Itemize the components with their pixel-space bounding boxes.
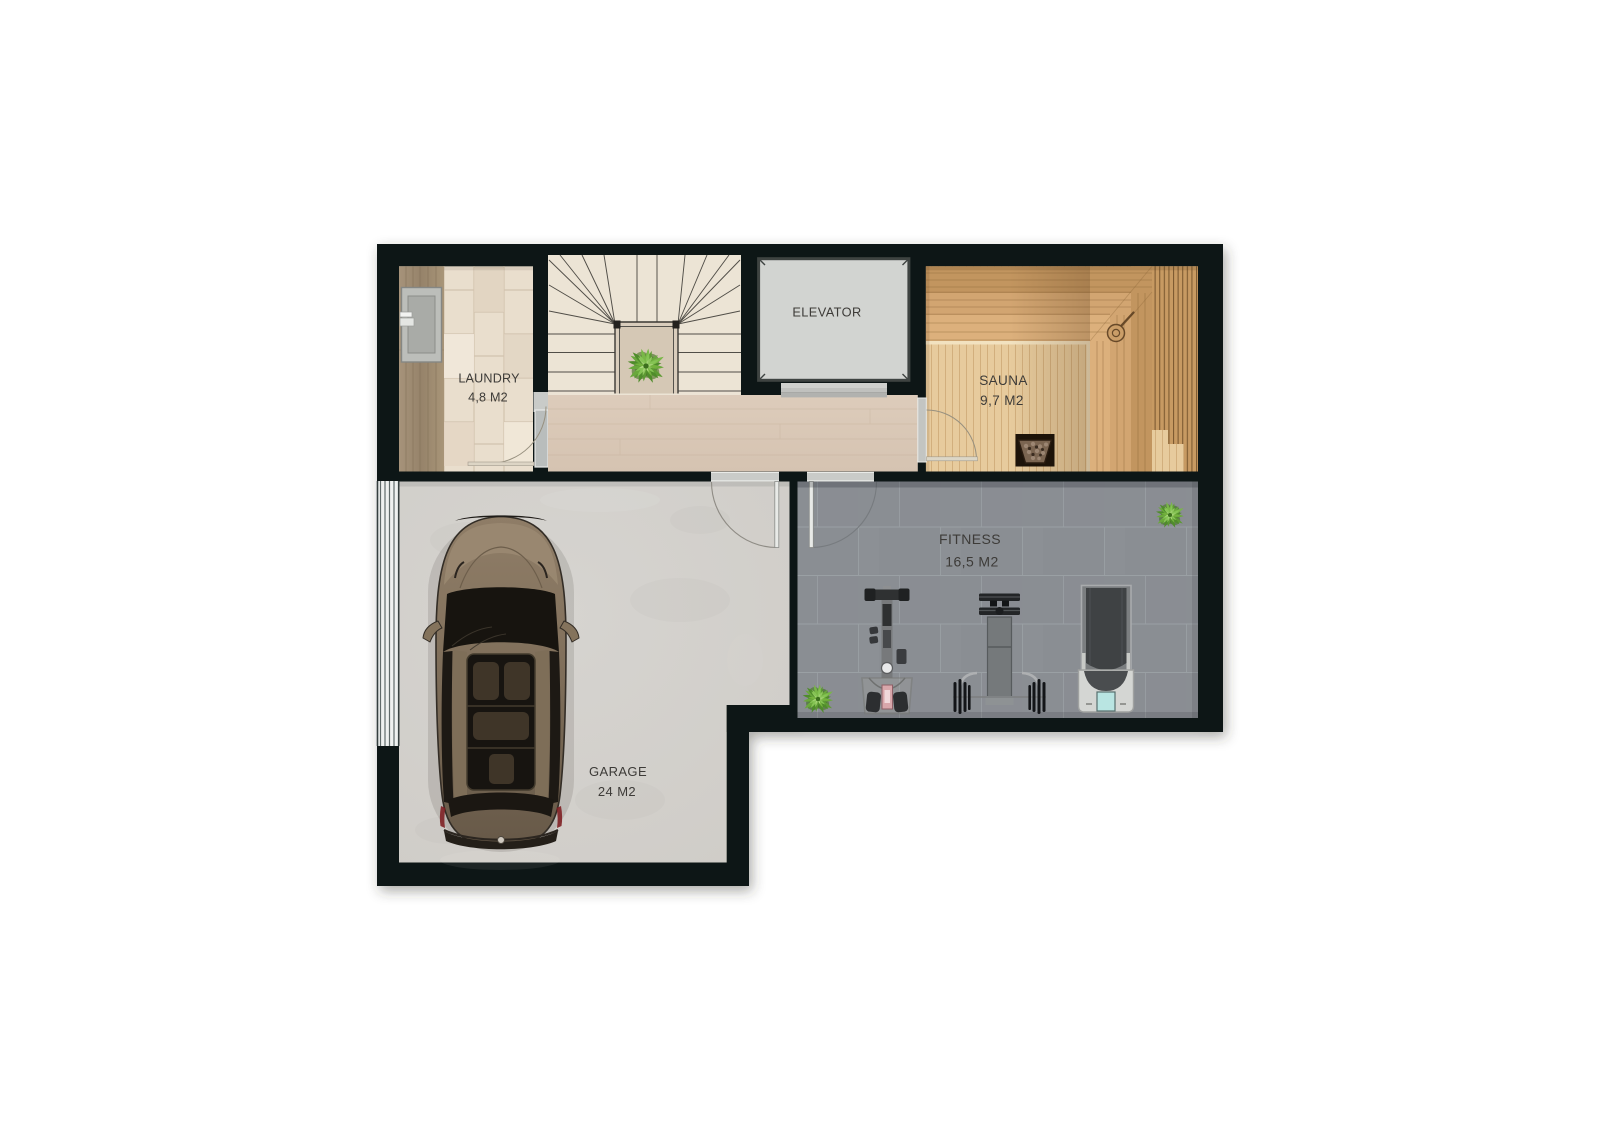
- svg-text:16,5 M2: 16,5 M2: [945, 554, 998, 570]
- svg-text:4,8 M2: 4,8 M2: [468, 391, 508, 405]
- svg-text:9,7 M2: 9,7 M2: [980, 393, 1024, 408]
- svg-text:24 M2: 24 M2: [598, 784, 636, 799]
- svg-text:SAUNA: SAUNA: [979, 373, 1028, 388]
- svg-text:LAUNDRY: LAUNDRY: [458, 372, 520, 386]
- svg-text:GARAGE: GARAGE: [589, 764, 647, 779]
- svg-text:ELEVATOR: ELEVATOR: [792, 305, 861, 320]
- svg-text:FITNESS: FITNESS: [939, 531, 1001, 547]
